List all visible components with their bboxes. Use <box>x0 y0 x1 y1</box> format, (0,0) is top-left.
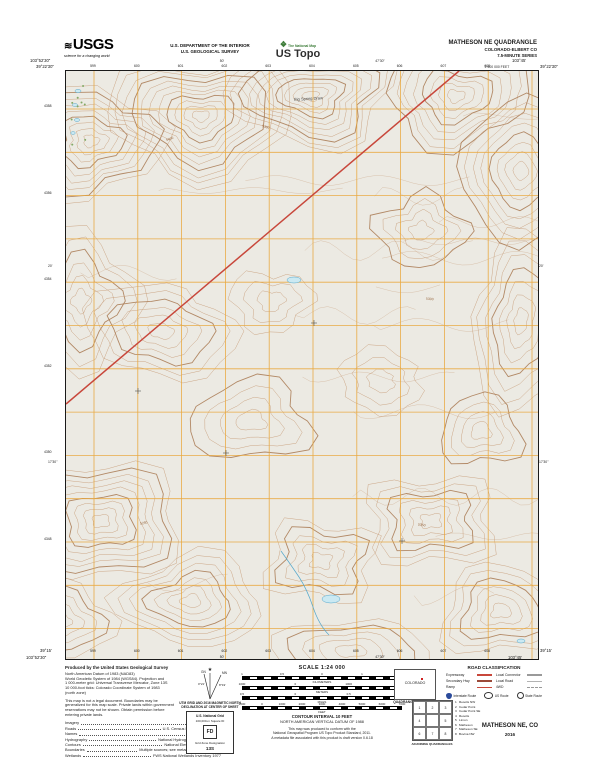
road-type-label: Local Connector <box>496 673 527 677</box>
quadrangle-location-map: COLORADO <box>394 669 436 700</box>
adjoining-cell: 2 <box>426 701 439 714</box>
scale-bars: 10.5012KILOMETERS1000010002000METERS0.50… <box>242 672 402 711</box>
usng-zone-label: Grid Zone Designation <box>187 741 233 745</box>
state-label: COLORADO <box>395 681 435 685</box>
scale-mark: 0 <box>321 672 323 676</box>
usng-zone: 13S <box>187 746 233 751</box>
scale-mark: 0.5 <box>240 692 244 696</box>
ustopo-logo: ❖ The National Map US Topo <box>268 40 328 60</box>
scale-mark: 0.5 <box>347 692 351 696</box>
state-route-circle-icon <box>517 692 524 699</box>
quad-title: MATHESON NE QUADRANGLE <box>350 40 537 46</box>
scale-mark: 1 <box>361 672 363 676</box>
scale-mark: 3000 <box>319 702 326 706</box>
adjoining-caption: ADJOINING QUADRANGLES <box>398 742 466 746</box>
svg-text:0°21': 0°21' <box>198 682 205 686</box>
corner-sw-lat: 39°15' <box>40 648 52 653</box>
contour-interval-note: CONTOUR INTERVAL 10 FEET <box>242 714 402 719</box>
source-leader <box>83 745 163 746</box>
road-classification-legend: ROAD CLASSIFICATION Expressway Local Con… <box>446 665 542 699</box>
scale-mark: 0 <box>294 692 296 696</box>
usgs-wave-icon: ≋ <box>64 41 72 52</box>
road-type-label: Expressway <box>446 673 477 677</box>
svg-text:MN: MN <box>222 671 228 675</box>
interstate-shield-icon <box>446 693 452 699</box>
grid-tick-label: 599 <box>90 64 96 68</box>
scale-mark: 1 <box>241 672 243 676</box>
us-route-oval-icon <box>484 692 493 699</box>
grid-tick-label: 20' <box>539 264 543 268</box>
scale-mark: 2000 <box>299 702 306 706</box>
svg-text:GN: GN <box>201 670 206 674</box>
ustopo-brand: US Topo <box>268 49 328 60</box>
grid-tick-label: 20' <box>48 264 52 268</box>
expressway-swatch <box>477 674 492 676</box>
ramp-swatch <box>477 687 492 688</box>
corner-ne-lat: 39°22'30" <box>540 64 558 69</box>
road-type-label: 4WD <box>496 685 527 689</box>
grid-tick-label: 600 <box>134 649 140 653</box>
adjoining-cell-center <box>426 714 439 727</box>
grid-tick-label: 606 <box>397 649 403 653</box>
road-class-title: ROAD CLASSIFICATION <box>446 665 542 670</box>
corner-sw-lon: 103°52'30" <box>26 655 46 660</box>
grid-tick-label: 604 <box>309 649 315 653</box>
grid-tick-label: 4350 <box>44 450 52 454</box>
scale-mark: 6000 <box>379 702 386 706</box>
scale-mark: 0 <box>261 702 263 706</box>
grid-tick-label: 17'30" <box>48 460 57 464</box>
grid-tick-label: 47'30" <box>375 655 384 659</box>
quadrangle-title-block: MATHESON NE QUADRANGLE COLORADO-ELBERT C… <box>350 40 537 58</box>
scale-mark: 1000 <box>279 702 286 706</box>
grid-tick-label: 2 600 000 FEET <box>485 65 510 69</box>
scale-bar-line <box>242 706 402 710</box>
grid-tick-label: 50' <box>220 655 224 659</box>
usgs-logo: ≋USGS science for a changing world <box>64 38 134 58</box>
scale-unit-label: FEET <box>242 710 402 714</box>
scale-mark: 5000 <box>359 702 366 706</box>
route-marker-row: Interstate Route US Route State Route <box>446 692 542 699</box>
scale-bar-line <box>242 696 402 700</box>
route-type-label: US Route <box>495 694 509 698</box>
usgs-topo-map-sheet: { "header": { "usgs_logo": "USGS", "usgs… <box>0 0 600 765</box>
department-heading: U.S. DEPARTMENT OF THE INTERIOR U.S. GEO… <box>130 43 290 54</box>
grid-tick-label: 608 <box>484 649 490 653</box>
scale-bar: 1000010002000METERS <box>242 682 402 691</box>
grid-tick-label: 601 <box>178 649 184 653</box>
usng-square-id: FD <box>203 725 217 739</box>
scale-bar: 0.500.51MILES <box>242 692 402 701</box>
scale-bar-line <box>242 676 402 680</box>
map-canvas <box>66 71 538 659</box>
adjoining-cell: 6 <box>413 727 426 740</box>
scale-bar: 10.5012KILOMETERS <box>242 672 402 681</box>
grid-tick-label: 47'30" <box>375 59 384 63</box>
contour-label: 5350 <box>418 522 426 527</box>
source-leader <box>81 724 192 725</box>
grid-tick-label: 603 <box>265 649 271 653</box>
adjoining-cell: 8 <box>439 727 452 740</box>
usng-subtitle: 100,000-m Square ID <box>187 719 233 723</box>
adjoining-cell: 4 <box>413 714 426 727</box>
grid-tick-label: 606 <box>397 64 403 68</box>
grid-tick-label: 599 <box>90 649 96 653</box>
scale-mark: 1000 <box>239 702 246 706</box>
usgs-logo-text: USGS <box>73 36 114 53</box>
adjoining-cell: 3 <box>439 701 452 714</box>
dept-line2: U.S. GEOLOGICAL SURVEY <box>130 49 290 55</box>
scale-block: SCALE 1:24 000 10.5012KILOMETERS10000100… <box>242 665 402 740</box>
svg-text:8°19': 8°19' <box>219 683 226 687</box>
contour-label: 5300 <box>426 297 434 302</box>
source-leader <box>78 729 160 730</box>
sheet-year: 2016 <box>468 732 552 737</box>
scale-mark: 1000 <box>239 682 246 686</box>
scale-bar: 100001000200030004000500060007000FEET <box>242 702 402 711</box>
corner-se-lon: 103°45' <box>508 655 522 660</box>
grid-tick-label: 602 <box>222 649 228 653</box>
corner-nw-lat: 39°22'30" <box>36 64 54 69</box>
corner-se-lat: 39°15' <box>540 648 552 653</box>
adjoining-cell: 5 <box>439 714 452 727</box>
quad-series: 7.5-MINUTE SERIES <box>350 53 537 58</box>
corner-ne-lon: 103°45' <box>512 58 526 63</box>
grid-tick-label: 602 <box>222 64 228 68</box>
grid-tick-label: 4356 <box>44 191 52 195</box>
local-connector-swatch <box>527 674 542 675</box>
grid-tick-label: 604 <box>309 64 315 68</box>
grid-tick-label: 607 <box>441 649 447 653</box>
road-type-label: Secondary Hwy <box>446 679 477 683</box>
source-leader <box>83 756 151 757</box>
map-area: Big Spring Draw 5400 5380 5300 5250 5350 <box>65 70 539 660</box>
declination-diagram: ★ GN 0°21' MN 8°19' <box>188 665 232 701</box>
source-leader <box>87 751 138 752</box>
standard-line: A metadata file associated with this pro… <box>242 736 402 740</box>
adjoining-cell: 7 <box>426 727 439 740</box>
grid-tick-label: 603 <box>265 64 271 68</box>
adjoining-quadrangles-grid: 1 2 3 4 5 6 7 8 <box>412 700 453 741</box>
source-label: Wetlands <box>65 753 81 758</box>
road-class-row: Ramp 4WD <box>446 684 542 690</box>
vertical-datum-note: NORTH AMERICAN VERTICAL DATUM OF 1988 <box>242 720 402 724</box>
usgs-wordmark: ≋USGS <box>64 38 134 54</box>
svg-text:★: ★ <box>208 667 213 673</box>
grid-tick-label: 4354 <box>44 277 52 281</box>
corner-nw-lon: 103°52'30" <box>30 58 50 63</box>
scale-mark: 1000 <box>345 682 352 686</box>
scale-bar-line <box>242 686 402 690</box>
quad-state: COLORADO-ELBERT CO <box>350 47 537 52</box>
grid-tick-label: 607 <box>441 64 447 68</box>
grid-tick-label: 50' <box>220 59 224 63</box>
us-national-grid-box: U.S. National Grid 100,000-m Square ID F… <box>186 711 234 754</box>
scale-mark: 4000 <box>339 702 346 706</box>
local-road-swatch <box>527 681 542 682</box>
scale-mark: 0 <box>294 682 296 686</box>
grid-tick-label: 4348 <box>44 537 52 541</box>
grid-tick-label: 605 <box>353 649 359 653</box>
usng-title: U.S. National Grid <box>187 714 233 718</box>
usgs-tagline: science for a changing world <box>64 54 134 58</box>
adjoining-quadrangles-list: 1Resolis NW 2Cedar Point 3Cedar Point SE… <box>455 700 489 736</box>
grid-tick-label: 4358 <box>44 104 52 108</box>
route-type-label: Interstate Route <box>454 694 477 698</box>
source-leader <box>89 740 156 741</box>
adjoining-cell: 1 <box>413 701 426 714</box>
grid-tick-label: 605 <box>353 64 359 68</box>
grid-tick-label: 17'30" <box>539 460 548 464</box>
grid-tick-label: 601 <box>178 64 184 68</box>
road-type-label: Local Road <box>496 679 527 683</box>
4wd-swatch <box>527 687 542 688</box>
scale-mark: 0.5 <box>280 672 284 676</box>
quad-location-marker <box>421 678 424 681</box>
sheet-name: MATHESON NE, CO <box>468 723 552 729</box>
road-type-label: Ramp <box>446 685 477 689</box>
source-leader <box>79 735 198 736</box>
scale-title: SCALE 1:24 000 <box>242 665 402 671</box>
secondary-hwy-swatch <box>477 680 492 681</box>
route-type-label: State Route <box>525 694 542 698</box>
grid-tick-label: 4352 <box>44 364 52 368</box>
grid-tick-label: 600 <box>134 64 140 68</box>
